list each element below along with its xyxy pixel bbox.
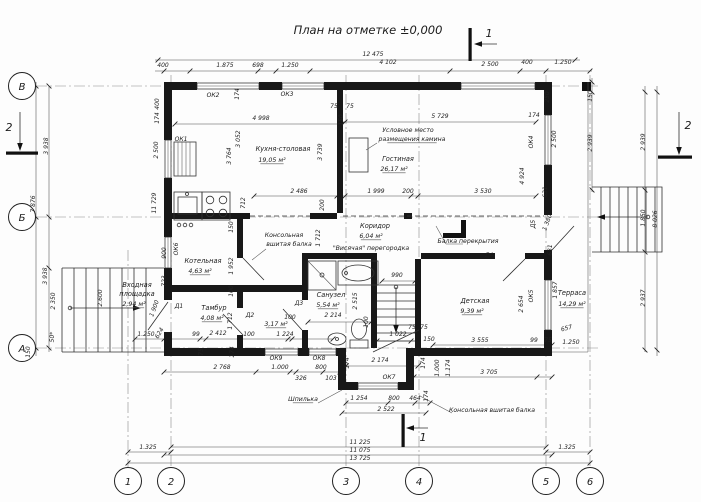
axis-label: Б	[19, 213, 26, 224]
dimension-text: 2 939	[640, 133, 647, 150]
dimension-text: 698	[252, 62, 264, 69]
dimension-text: 2 500	[551, 130, 558, 147]
dimension-text: 1.850	[640, 209, 647, 226]
kitchen-cabinet-icon	[174, 142, 196, 176]
dimension-text: 1.000	[271, 364, 288, 371]
dimension-text: 99	[530, 337, 538, 344]
dimension-text: 2 937	[640, 289, 647, 306]
axis-bubble-5: 5	[533, 468, 560, 495]
dimension-text: 174	[344, 357, 351, 369]
dimension-text: 3 739	[317, 143, 324, 160]
dimension-text: 1 254	[350, 395, 367, 402]
dimension-text: 2 522	[377, 406, 394, 413]
annotation: Условное место	[382, 127, 434, 134]
window-mark: ОК1	[175, 136, 188, 143]
axis-bubble-2: 2	[158, 468, 185, 495]
dimension-text: 3 705	[480, 369, 497, 376]
dimension-text: 631	[547, 244, 554, 255]
room-area: 6,04 м²	[359, 233, 383, 240]
room-name: Детская	[460, 297, 490, 305]
window-mark: ОК8	[313, 355, 326, 362]
fireplace-icon	[349, 138, 368, 172]
dimension-text: 8 026	[652, 210, 659, 227]
dimension-text: 200	[319, 199, 326, 211]
window-mark: ОК6	[173, 242, 180, 255]
dimension-text: 75	[544, 337, 552, 344]
window-mark: ОК2	[207, 92, 220, 99]
dimension-text: 1 712	[227, 312, 234, 329]
dimension-text: 75	[420, 324, 428, 331]
section-label: 2	[685, 119, 692, 132]
room-name: Кухня-столовая	[256, 145, 311, 153]
room-area: 3,17 м²	[264, 321, 288, 328]
dimension-text: 50*	[49, 332, 56, 343]
dimension-text: 3 938	[43, 137, 50, 154]
dimension-text: 75	[408, 324, 416, 331]
dimension-text: 150	[423, 336, 435, 343]
dimension-text: 174	[154, 112, 161, 124]
annotation: "Висячая" перегородка	[333, 245, 410, 252]
dimension-text: 723	[161, 275, 168, 287]
room-area: 4,63 м²	[188, 268, 212, 275]
window-mark: ОК4	[528, 135, 535, 148]
room-area: 14,29 м²	[558, 301, 586, 308]
dimension-text: 400	[154, 98, 161, 110]
terrace-column	[582, 82, 591, 91]
dimension-text: 75	[198, 348, 205, 356]
door-leaf-icon	[503, 259, 525, 281]
dimension-text: 1 857	[552, 281, 559, 298]
dimension-text: 75	[330, 103, 338, 110]
dimension-text: 150	[228, 221, 235, 233]
dimension-text: 1.174	[445, 359, 452, 376]
door-leaf-icon	[552, 226, 574, 250]
dimension-text: 2 350	[50, 292, 57, 309]
kitchen-sink-icon	[174, 192, 202, 227]
dimension-text: 990	[391, 272, 403, 279]
dimension-text: 3 764	[226, 147, 233, 164]
dimension-text: 1.250	[562, 339, 579, 346]
axis-bubble-В: В	[9, 73, 36, 100]
room-name: Тамбур	[201, 304, 226, 312]
dimension-ticks	[34, 58, 660, 466]
dimension-text: 2.600	[97, 289, 104, 306]
beam-icon	[443, 220, 466, 238]
dimension-text: 2 412	[209, 330, 226, 337]
dimension-text: 800	[315, 364, 327, 371]
window-mark: ОК5	[528, 289, 535, 302]
dimension-text: 150	[338, 114, 345, 126]
drawing-title: План на отметке ±0,000	[294, 23, 443, 37]
axis-label: 3	[343, 477, 349, 488]
dimension-text: 3 052	[235, 130, 242, 147]
door-leaf-icon	[243, 258, 264, 280]
dimension-text: 11 075	[350, 447, 371, 454]
room-name: Котельная	[184, 257, 221, 265]
dimension-text: 1.325	[139, 444, 156, 451]
window-mark: ОК3	[281, 91, 294, 98]
floor-plan-drawing: План на отметке ±0,000	[0, 0, 701, 502]
room-area: 2,94 м²	[122, 301, 146, 308]
section-marker-top: 1	[469, 27, 498, 61]
dimension-text: 174	[528, 112, 540, 119]
dimension-text: 11 729	[151, 192, 158, 213]
dimension-text: 1.250	[281, 62, 298, 69]
room-name: Терраса	[558, 289, 586, 297]
room-name: площадка	[119, 290, 154, 298]
dimension-text: 712	[240, 197, 247, 209]
dimension-text: 2 214	[324, 312, 341, 319]
dimension-text: 2 500	[153, 141, 160, 158]
dimension-text: 174	[229, 346, 236, 358]
door-mark: Д4	[484, 252, 494, 259]
room-name: Санузел	[317, 291, 346, 299]
room-name: Входная	[122, 281, 151, 289]
dimension-text: 657	[560, 324, 573, 334]
dimension-text: 624	[154, 326, 166, 340]
section-marker-bottom: 1	[402, 414, 429, 447]
dimension-text: 12 475	[363, 51, 384, 58]
door-mark: Д1	[174, 303, 184, 310]
dimension-text: 631	[542, 186, 549, 197]
dimension-text: 1 712	[315, 229, 322, 246]
room-name: Коридор	[360, 222, 390, 230]
dimension-text: 1.250	[137, 331, 154, 338]
axis-label: 4	[416, 477, 422, 488]
annotation: Балка перекрытия	[438, 238, 499, 245]
room-area: 19,05 м²	[258, 157, 286, 164]
dimension-text: 400	[157, 62, 169, 69]
window-mark: ОК7	[383, 374, 396, 381]
dimension-text: 7 876	[30, 195, 37, 212]
axis-bubble-3: 3	[333, 468, 360, 495]
door-mark: Д3	[294, 300, 304, 307]
annotation: Консольная вшитая балка	[449, 406, 535, 414]
dimension-text: 11 225	[350, 439, 371, 446]
dimension-text: 75	[346, 103, 354, 110]
dimension-text: 4 102	[379, 59, 396, 66]
dimension-text: 250	[544, 91, 551, 103]
section-marker-left: 2	[6, 112, 39, 155]
dimension-text: 326	[295, 375, 307, 382]
dimension-text: 174	[423, 390, 430, 402]
door-mark: Д2	[245, 312, 255, 319]
door-mark: Д5	[530, 220, 537, 230]
annotation: Консольная	[265, 232, 304, 239]
shower-icon	[308, 261, 336, 290]
dimension-text: 100	[228, 285, 235, 297]
dimension-text: 99	[192, 331, 200, 338]
axis-bubble-6: 6	[577, 468, 604, 495]
section-label: 1	[420, 431, 427, 444]
dimension-text: 5 729	[431, 113, 448, 120]
dimension-text: 174	[420, 357, 427, 369]
dimension-text: 2 939	[587, 134, 594, 151]
walls	[164, 82, 552, 390]
section-label: 2	[6, 121, 13, 134]
axis-label: 1	[125, 477, 131, 488]
dimension-text: 100	[363, 316, 370, 328]
room-name: Гостиная	[382, 155, 414, 163]
axis-label: 6	[587, 477, 593, 488]
dimension-text: 3 938	[42, 267, 49, 284]
dimension-text: 800	[388, 395, 400, 402]
dimension-text: 1 224	[276, 331, 293, 338]
dimension-text: 2 500	[481, 61, 498, 68]
dimension-text: 900	[161, 247, 168, 259]
dimension-text: 174	[234, 88, 241, 100]
drawing-sheet: План на отметке ±0,000	[0, 0, 701, 502]
dimension-text: 2 654	[518, 295, 525, 312]
axis-label: 5	[543, 477, 549, 488]
dimension-text: 1.325	[558, 444, 575, 451]
axis-label: В	[19, 82, 26, 93]
window-mark: ОК9	[270, 355, 283, 362]
dimension-text: 1.875	[216, 62, 233, 69]
dimension-text: 2 515	[352, 292, 359, 309]
dimension-text: 2 174	[371, 357, 388, 364]
annotation: вшитая балка	[266, 240, 312, 248]
axis-label: 2	[168, 477, 174, 488]
room-area: 4,08 м²	[200, 315, 224, 322]
axis-bubble-1: 1	[115, 468, 142, 495]
dimension-text: 1 952	[228, 257, 235, 274]
dimension-text: 3 555	[471, 337, 488, 344]
room-area: 5,54 м²	[316, 302, 340, 309]
dimension-text: 1 999	[367, 188, 384, 195]
axis-bubble-4: 4	[406, 468, 433, 495]
annotation: размещения камина	[378, 136, 446, 143]
dimension-text: 103	[325, 375, 337, 382]
window-symbols	[165, 83, 551, 389]
dimension-text: 3 530	[474, 188, 491, 195]
dimension-text: 400	[521, 59, 533, 66]
dimension-text: 13 725	[350, 455, 371, 462]
dimension-text: 4 998	[252, 115, 269, 122]
dimension-text: 4 924	[519, 167, 526, 184]
room-area: 9,39 м²	[460, 308, 484, 315]
dimension-text: 1.000	[434, 359, 441, 376]
dimension-text: 2 768	[213, 364, 230, 371]
dimension-text: 100	[284, 314, 296, 321]
room-area: 26,17 м²	[380, 166, 408, 173]
dimension-text: 2 486	[290, 188, 307, 195]
dimension-text: 1 022	[389, 331, 406, 338]
section-label: 1	[486, 27, 493, 40]
dimension-text: 100	[243, 331, 255, 338]
dimension-text: 150	[25, 346, 32, 358]
dimension-text: 200	[402, 188, 414, 195]
dimension-text: 464	[409, 395, 421, 402]
dimension-text: 1.250	[554, 59, 571, 66]
dimension-text: 150	[587, 90, 594, 102]
section-marker-right: 2	[658, 112, 692, 159]
annotation: Шпилька	[288, 396, 318, 403]
